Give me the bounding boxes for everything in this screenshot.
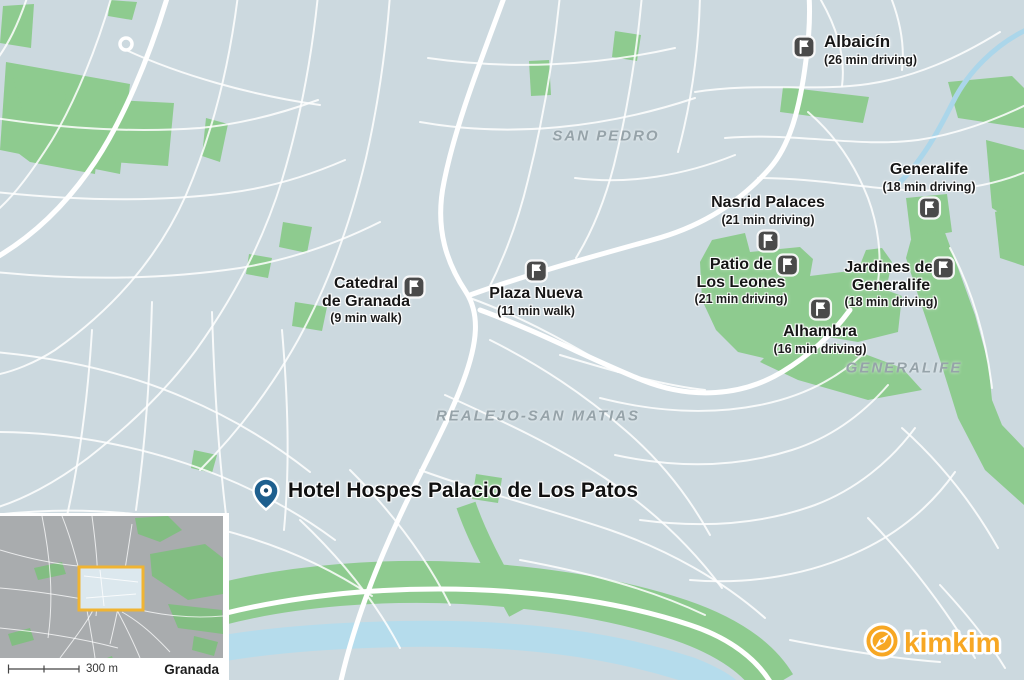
- scale-label: 300 m: [86, 663, 118, 675]
- kimkim-logo: kimkim: [860, 618, 1010, 664]
- poi-name-line1: Patio de: [710, 256, 772, 274]
- area-label-realejo: REALEJO-SAN MATIAS: [436, 408, 640, 425]
- inset-city-label: Granada: [164, 662, 219, 677]
- poi-time: (26 min driving): [824, 54, 917, 68]
- poi-time: (16 min driving): [773, 343, 866, 357]
- brand-text: kimkim: [904, 627, 1001, 658]
- poi-name: Alhambra: [783, 323, 857, 341]
- poi-name: Albaicín: [824, 33, 890, 52]
- area-label-san-pedro: SAN PEDRO: [552, 128, 659, 145]
- poi-time: (18 min driving): [882, 181, 975, 195]
- flag-marker-icon: [524, 259, 548, 283]
- poi-name-line2: Los Leones: [697, 274, 786, 292]
- poi-albaicin: Albaicín (26 min driving): [792, 33, 917, 67]
- poi-name: Nasrid Palaces: [711, 194, 825, 212]
- poi-time: (11 min walk): [497, 305, 575, 319]
- poi-alhambra: Alhambra (16 min driving): [773, 295, 866, 356]
- flag-marker-icon: [792, 35, 816, 59]
- poi-nasrid-palaces: Nasrid Palaces (21 min driving): [711, 194, 825, 255]
- poi-name-line2: de Granada: [322, 293, 410, 311]
- flag-marker-icon: [808, 297, 832, 321]
- flag-marker-icon: [402, 275, 426, 299]
- poi-name-line2: Generalife: [852, 277, 930, 295]
- compass-icon: [865, 624, 899, 658]
- flag-marker-icon: [756, 229, 780, 253]
- inset-footer: 300 m Granada: [0, 658, 226, 680]
- flag-marker-icon: [775, 253, 799, 277]
- poi-name-line1: Jardines del: [844, 259, 937, 277]
- poi-name: Generalife: [890, 161, 968, 179]
- poi-time: (9 min walk): [330, 312, 402, 326]
- inset-overview-map: 300 m Granada: [0, 513, 229, 680]
- flag-marker-icon: [917, 196, 941, 220]
- poi-generalife: Generalife (18 min driving): [882, 161, 975, 222]
- inset-viewport-box: [79, 567, 143, 610]
- area-label-generalife: GENERALIFE: [846, 360, 963, 377]
- granada-map: SAN PEDRO REALEJO-SAN MATIAS GENERALIFE …: [0, 0, 1024, 680]
- scale-bar-icon: [7, 663, 81, 675]
- poi-name: Plaza Nueva: [489, 285, 582, 303]
- flag-marker-icon: [931, 256, 955, 280]
- hotel-name-label: Hotel Hospes Palacio de Los Patos: [288, 479, 638, 503]
- hotel-pin-icon: [252, 477, 280, 511]
- poi-time: (21 min driving): [721, 214, 814, 228]
- poi-name-line1: Catedral: [334, 275, 398, 293]
- poi-catedral-de-granada: Catedral de Granada (9 min walk): [322, 275, 410, 326]
- poi-plaza-nueva: Plaza Nueva (11 min walk): [489, 257, 582, 318]
- inset-map-canvas: [0, 516, 223, 658]
